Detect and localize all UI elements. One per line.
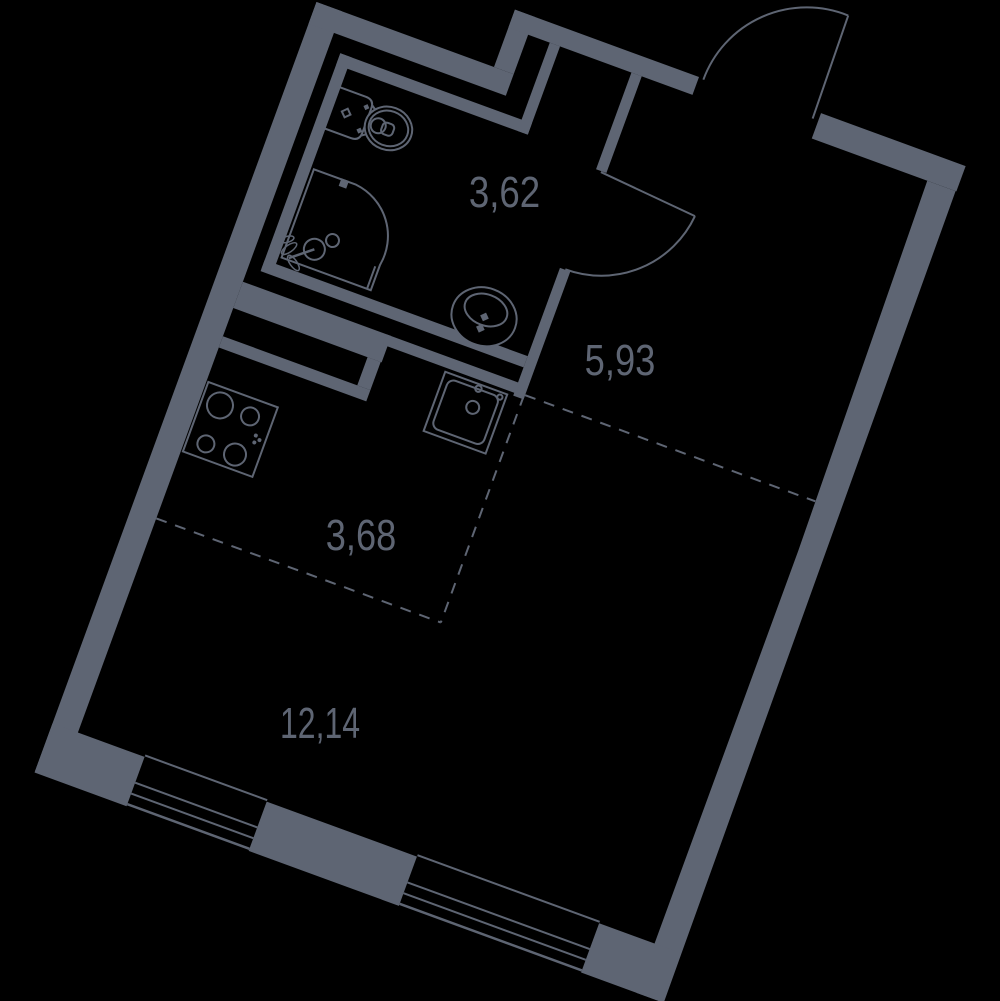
svg-text:5,93: 5,93 bbox=[585, 337, 656, 385]
svg-text:12,14: 12,14 bbox=[280, 699, 360, 748]
svg-text:3,62: 3,62 bbox=[469, 168, 540, 217]
svg-text:3,68: 3,68 bbox=[326, 512, 396, 560]
